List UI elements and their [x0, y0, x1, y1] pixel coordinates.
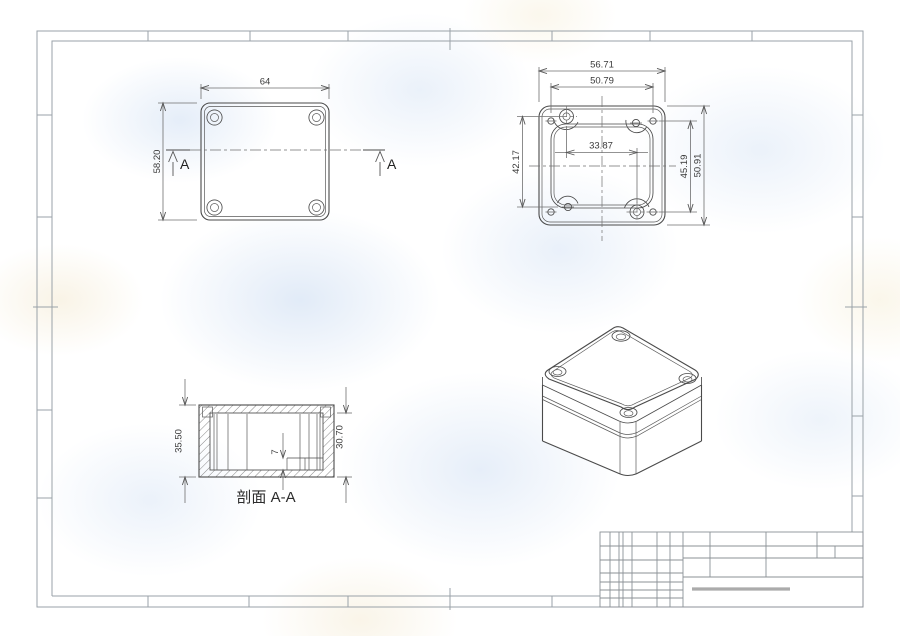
sheet-frame — [33, 28, 867, 610]
boss-bulge — [558, 196, 579, 203]
screw-hole — [309, 110, 324, 125]
back-view: 56.71 50.79 33.87 42.17 45.19 — [511, 60, 710, 242]
corner-hole — [546, 209, 557, 215]
dim-inner-span: 33.87 — [555, 127, 648, 203]
bottom-step — [287, 458, 323, 470]
drawing-canvas: 64 58.20 A A — [0, 0, 900, 636]
isometric-view — [543, 327, 702, 476]
section-arrow-label-right: A — [387, 156, 397, 172]
top-view: 64 58.20 A A — [152, 77, 397, 221]
screw-hole — [207, 110, 222, 125]
dim-text-45-19: 45.19 — [679, 155, 690, 179]
zone-ticks-right — [845, 115, 867, 496]
drawing-sheet: 64 58.20 A A — [0, 0, 900, 636]
title-block-right-cells — [683, 532, 863, 589]
dim-text-35-50: 35.50 — [174, 429, 185, 453]
internal-bosses — [214, 414, 320, 470]
dim-top-height: 58.20 — [152, 103, 197, 220]
boss-bulge — [554, 120, 579, 130]
section-arrow-label-left: A — [180, 156, 190, 172]
dim-text-42-17: 42.17 — [511, 150, 522, 174]
dim-text-30-70: 30.70 — [335, 425, 346, 449]
boss-hole — [630, 119, 642, 126]
section-hatch — [199, 405, 334, 477]
dim-step-height: 7 — [270, 433, 286, 490]
screw-hole — [309, 200, 324, 215]
dim-text-58-20: 58.20 — [152, 150, 163, 174]
corner-hole — [648, 118, 659, 124]
dim-text-64: 64 — [260, 77, 271, 88]
title-block — [600, 532, 863, 607]
dim-text-50-91: 50.91 — [693, 154, 704, 178]
dim-base-height: 30.70 — [335, 387, 353, 503]
dim-top-width: 64 — [201, 77, 329, 100]
section-view: 35.50 30.70 7 剖面 A-A — [174, 379, 353, 506]
title-block-left-grid — [600, 532, 683, 607]
dim-text-50-79: 50.79 — [590, 76, 614, 87]
dim-text-33-87: 33.87 — [589, 141, 613, 152]
section-caption: 剖面 A-A — [236, 489, 295, 506]
screw-hole — [207, 200, 222, 215]
dim-text-56-71: 56.71 — [590, 60, 614, 71]
dim-text-7: 7 — [270, 449, 281, 454]
dim-overall-height: 35.50 — [174, 379, 197, 503]
corner-hole — [648, 209, 659, 215]
